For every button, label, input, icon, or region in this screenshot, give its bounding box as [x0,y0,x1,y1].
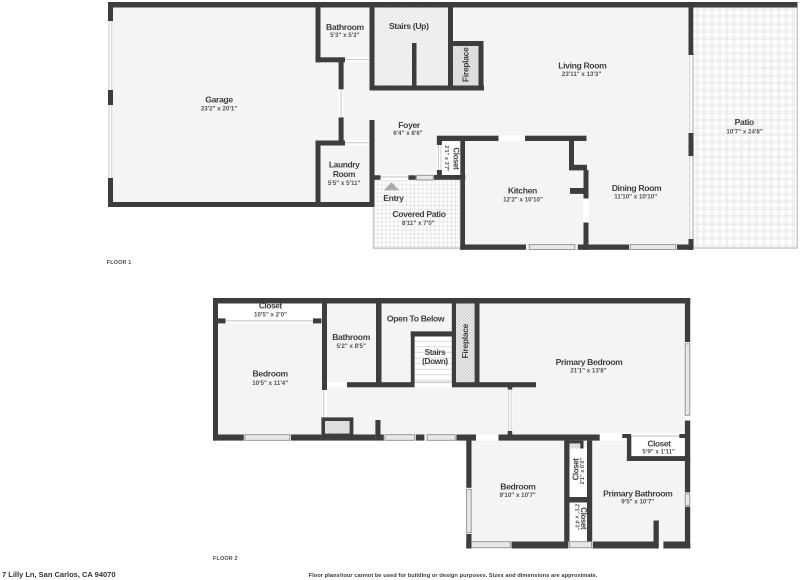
svg-text:Stairs: Stairs [425,348,446,357]
svg-text:11'10" x 10'10": 11'10" x 10'10" [614,193,657,200]
svg-text:Fireplace: Fireplace [461,47,471,82]
svg-text:5'3" x 5'3": 5'3" x 5'3" [330,32,360,39]
svg-text:Fireplace: Fireplace [460,323,470,358]
svg-text:10'5" x 2'0": 10'5" x 2'0" [254,311,287,318]
svg-text:2'1" x 6'0": 2'1" x 6'0" [580,458,586,485]
svg-text:Bathroom: Bathroom [326,22,364,32]
svg-text:Kitchen: Kitchen [508,186,537,196]
svg-text:23'11" x 13'3": 23'11" x 13'3" [562,71,602,78]
svg-text:(Down): (Down) [422,357,448,366]
svg-text:8'11" x 7'0": 8'11" x 7'0" [402,220,435,227]
svg-text:23'2" x 20'1": 23'2" x 20'1" [201,105,237,112]
svg-text:9'5" x 10'7": 9'5" x 10'7" [621,499,654,506]
svg-text:Closet: Closet [579,507,588,530]
svg-text:Bathroom: Bathroom [332,332,370,342]
svg-text:9'10" x 10'7": 9'10" x 10'7" [500,492,536,499]
svg-text:5'5" x 5'11": 5'5" x 5'11" [328,180,361,187]
svg-text:12'2" x 10'10": 12'2" x 10'10" [503,197,543,204]
svg-text:10'7" x 24'8": 10'7" x 24'8" [726,129,762,136]
svg-text:Primary Bedroom: Primary Bedroom [556,357,624,367]
svg-text:10'5" x 11'4": 10'5" x 11'4" [252,380,288,387]
svg-text:FLOOR 1: FLOOR 1 [107,260,132,266]
svg-text:Room: Room [333,169,355,179]
svg-text:FLOOR 2: FLOOR 2 [213,556,238,562]
svg-text:Open To Below: Open To Below [387,313,445,323]
svg-text:Living Room: Living Room [558,61,607,71]
svg-text:Patio: Patio [735,117,754,127]
svg-text:5'9" x 1'11": 5'9" x 1'11" [642,449,675,456]
svg-text:Closet: Closet [451,147,460,170]
svg-text:Foyer: Foyer [398,120,421,130]
svg-text:Covered Patio: Covered Patio [392,209,445,219]
svg-text:6'4" x 8'6": 6'4" x 8'6" [393,130,423,137]
svg-text:Bedroom: Bedroom [500,482,536,492]
svg-text:Stairs (Up): Stairs (Up) [389,21,429,31]
svg-text:5'2" x 8'5": 5'2" x 8'5" [336,343,366,350]
svg-text:2'1" x 3'7": 2'1" x 3'7" [443,145,449,172]
svg-text:2'1" x 4'3": 2'1" x 4'3" [574,504,580,531]
svg-text:Bedroom: Bedroom [253,368,289,378]
svg-text:21'1" x 13'8": 21'1" x 13'8" [570,368,606,375]
svg-text:Primary Bathroom: Primary Bathroom [603,489,673,499]
svg-text:Entry: Entry [383,193,404,203]
svg-text:Dining Room: Dining Room [612,183,662,193]
svg-text:Floor plans/tour cannot be use: Floor plans/tour cannot be used for buil… [309,573,598,579]
svg-text:7 Lilly Ln, San Carlos, CA 940: 7 Lilly Ln, San Carlos, CA 94070 [2,570,116,579]
svg-text:Closet: Closet [648,439,672,448]
svg-text:Garage: Garage [205,95,233,105]
